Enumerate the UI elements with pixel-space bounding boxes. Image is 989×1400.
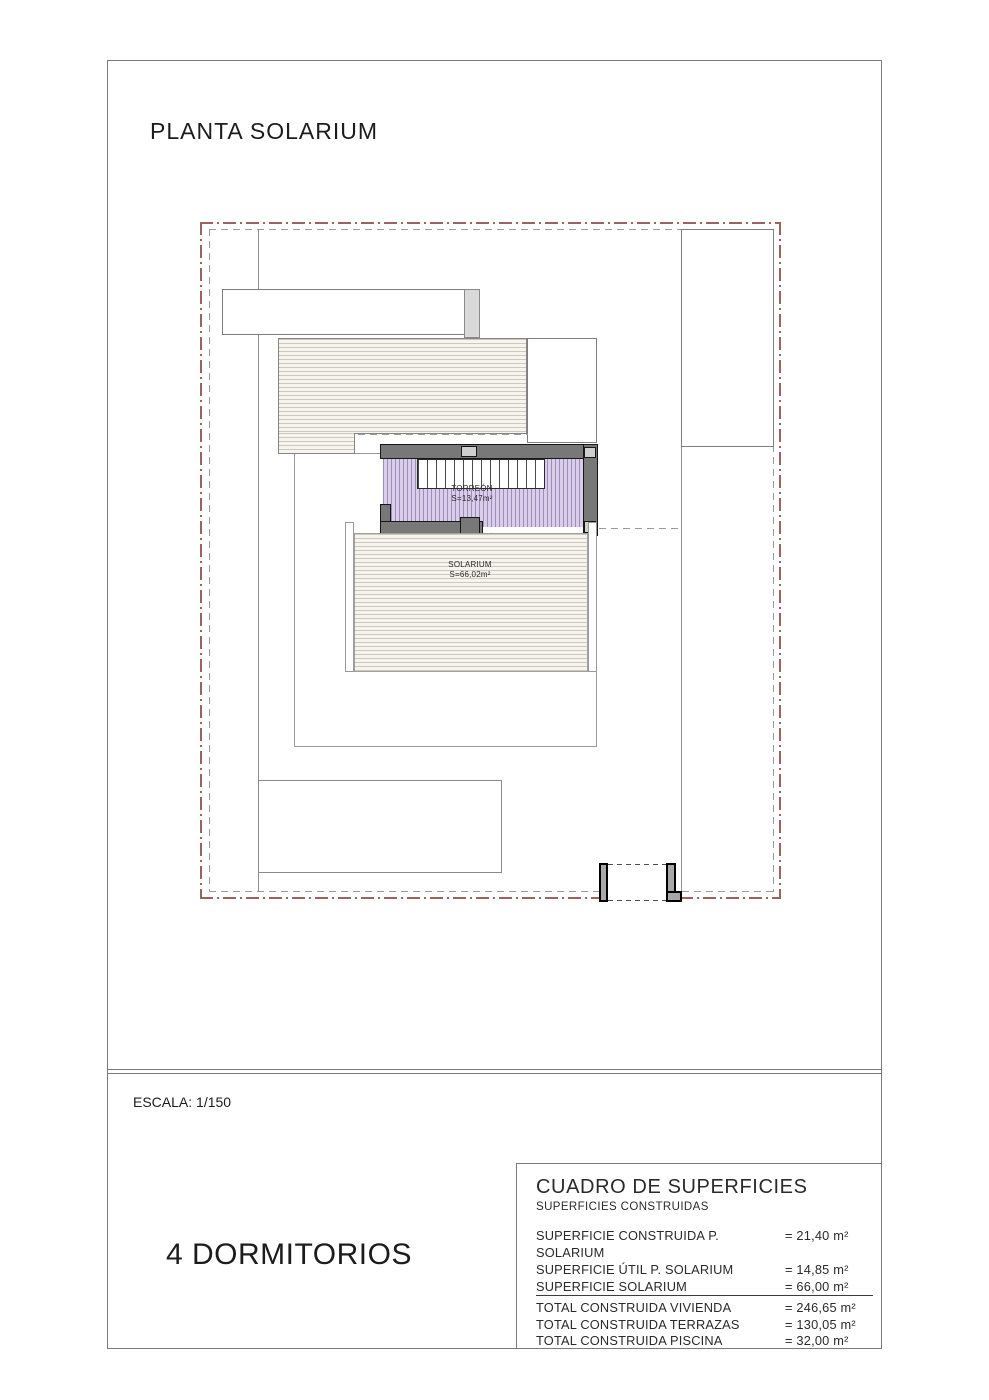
- parcel-boundary-top: [200, 222, 781, 224]
- surfaces-rows: SUPERFICIE CONSTRUIDA P. SOLARIUM = 21,4…: [536, 1227, 873, 1295]
- parcel-boundary-right: [779, 222, 781, 899]
- surface-row-label: SUPERFICIE SOLARIUM: [536, 1278, 785, 1295]
- total-row-value: = 130,05 m²: [785, 1317, 873, 1334]
- gate-pillar-right-foot: [666, 891, 682, 902]
- gate-pillar-left: [599, 863, 608, 902]
- torreon-label: TORREÓN S=13,47m²: [432, 484, 512, 504]
- setback-line-bottom-right: [682, 891, 773, 892]
- neighbor-roof-right: [681, 229, 774, 447]
- roof-edge-dashed-line: [358, 434, 528, 435]
- surface-row-value: = 21,40 m²: [785, 1227, 873, 1261]
- torreon-column-top-right: [584, 447, 596, 458]
- bedrooms-label: 4 DORMITORIOS: [166, 1238, 412, 1272]
- total-row: TOTAL CONSTRUIDA VIVIENDA = 246,65 m²: [536, 1300, 873, 1317]
- parcel-boundary-bottom-left: [200, 897, 602, 899]
- setback-line-bottom-left: [209, 891, 599, 892]
- solarium-name: SOLARIUM: [428, 560, 512, 570]
- solarium-beam-left: [345, 522, 354, 672]
- torreon-area: S=13,47m²: [432, 494, 512, 504]
- solarium-area: S=66,02m²: [428, 570, 512, 580]
- total-row-value: = 32,00 m²: [785, 1333, 873, 1350]
- parcel-boundary-left: [200, 222, 202, 899]
- total-row-label: TOTAL CONSTRUIDA PISCINA: [536, 1333, 785, 1350]
- plot-division-line-right: [681, 447, 682, 892]
- threshold-dashed-line: [599, 528, 682, 529]
- total-row: TOTAL CONSTRUIDA PISCINA = 32,00 m²: [536, 1333, 873, 1350]
- solarium-deck: [354, 533, 588, 672]
- setback-line-left: [209, 229, 210, 892]
- surfaces-table: CUADRO DE SUPERFICIES SUPERFICIES CONSTR…: [516, 1163, 882, 1349]
- parcel-boundary-bottom-right: [680, 897, 781, 899]
- pool-outline: [258, 780, 502, 873]
- scale-label: ESCALA: 1/150: [133, 1094, 231, 1110]
- surface-row: SUPERFICIE ÚTIL P. SOLARIUM = 14,85 m²: [536, 1261, 873, 1278]
- total-row: TOTAL CONSTRUIDA TERRAZAS = 130,05 m²: [536, 1317, 873, 1334]
- chimney-column: [464, 289, 480, 338]
- surfaces-totals: TOTAL CONSTRUIDA VIVIENDA = 246,65 m² TO…: [536, 1295, 873, 1350]
- surface-row-label: SUPERFICIE CONSTRUIDA P. SOLARIUM: [536, 1227, 785, 1261]
- torreon-column-top: [461, 446, 477, 457]
- torreon-name: TORREÓN: [432, 484, 512, 494]
- surfaces-table-title: CUADRO DE SUPERFICIES: [536, 1176, 873, 1199]
- surfaces-table-subtitle: SUPERFICIES CONSTRUIDAS: [536, 1201, 873, 1213]
- total-row-label: TOTAL CONSTRUIDA VIVIENDA: [536, 1300, 785, 1317]
- roof-hatch-main: [278, 338, 527, 434]
- surface-row-value: = 66,00 m²: [785, 1278, 873, 1295]
- gate-dashed-top: [608, 864, 666, 865]
- gate-dashed-bottom: [608, 900, 666, 901]
- surface-row: SUPERFICIE CONSTRUIDA P. SOLARIUM = 21,4…: [536, 1227, 873, 1261]
- surface-row-value: = 14,85 m²: [785, 1261, 873, 1278]
- solarium-beam-right: [588, 522, 597, 672]
- plan-title: PLANTA SOLARIUM: [150, 118, 378, 145]
- surface-row: SUPERFICIE SOLARIUM = 66,00 m²: [536, 1278, 873, 1295]
- total-row-label: TOTAL CONSTRUIDA TERRAZAS: [536, 1317, 785, 1334]
- total-row-value: = 246,65 m²: [785, 1300, 873, 1317]
- roof-flat-section: [527, 338, 597, 443]
- titleblock-divider: [107, 1069, 882, 1074]
- roof-hatch-extension: [278, 433, 355, 454]
- eave-bar: [222, 289, 480, 335]
- solarium-label: SOLARIUM S=66,02m²: [428, 560, 512, 580]
- torreon-wall-top: [380, 444, 598, 459]
- surface-row-label: SUPERFICIE ÚTIL P. SOLARIUM: [536, 1261, 785, 1278]
- drawing-sheet: { "page": { "title": "PLANTA SOLARIUM", …: [0, 0, 989, 1400]
